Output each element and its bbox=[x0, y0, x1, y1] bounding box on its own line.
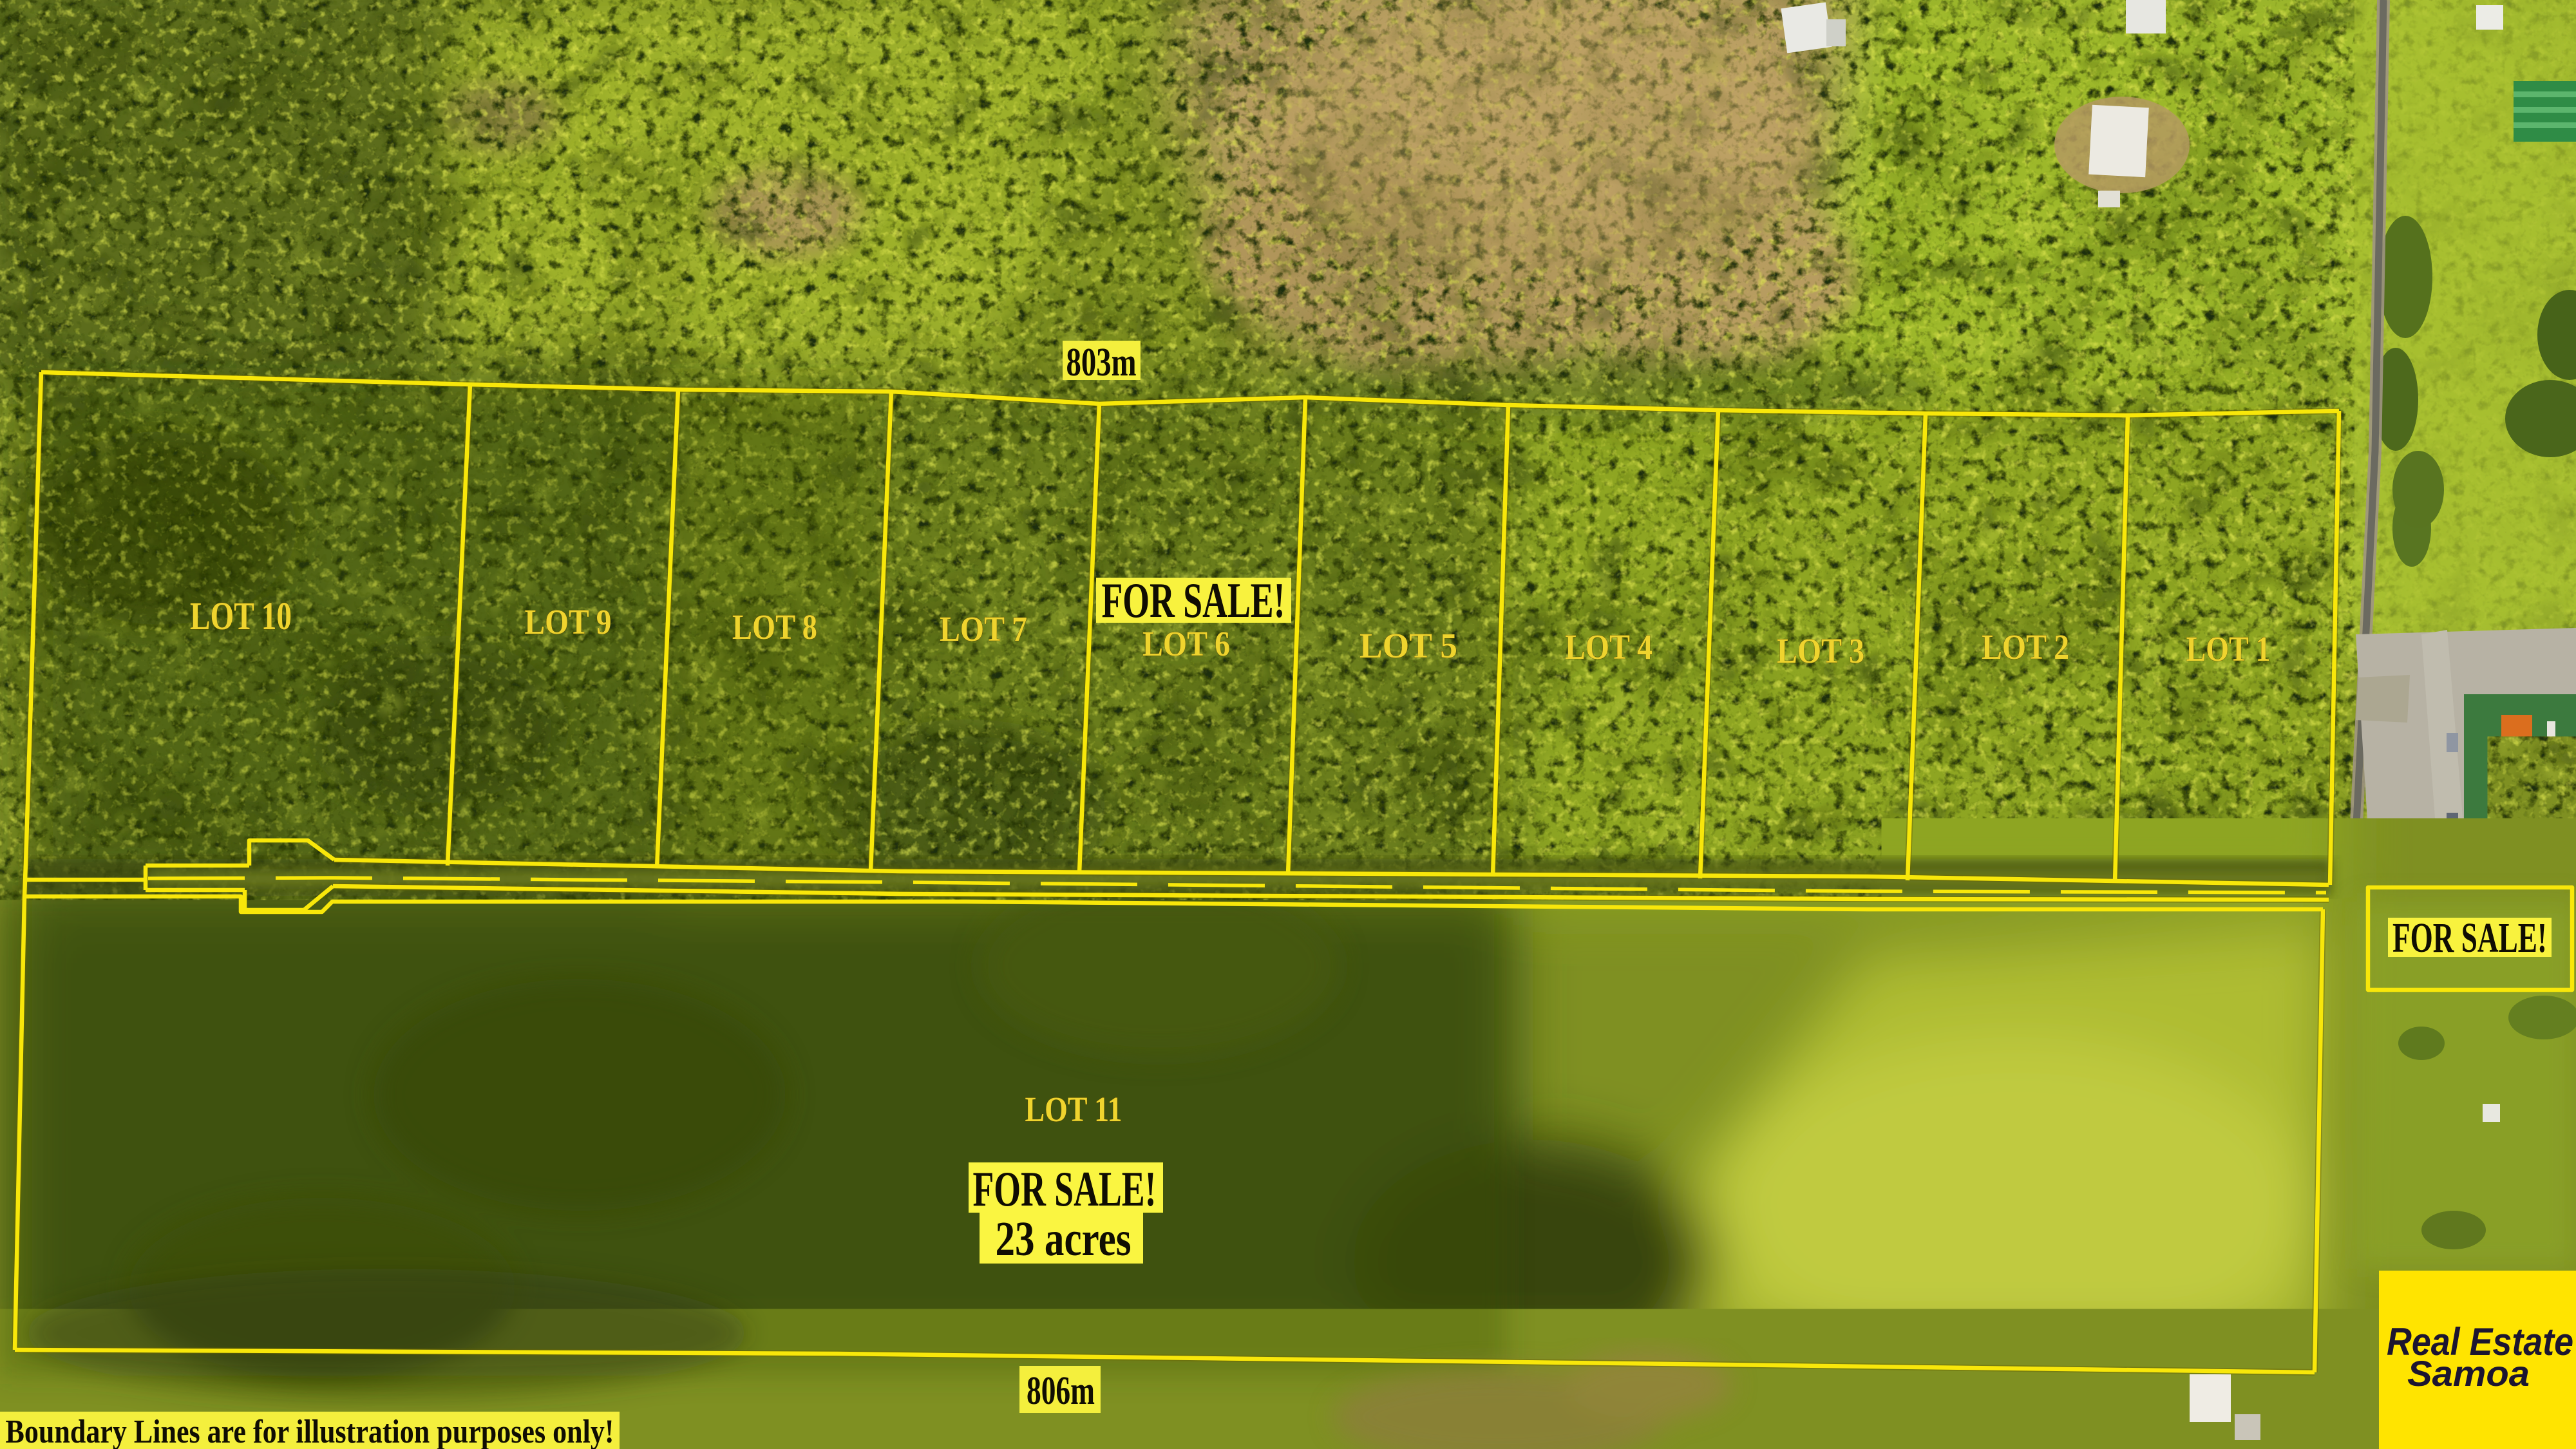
svg-text:LOT 6: LOT 6 bbox=[1142, 624, 1230, 663]
svg-text:23 acres: 23 acres bbox=[996, 1212, 1132, 1266]
svg-text:LOT 8: LOT 8 bbox=[732, 607, 817, 647]
svg-text:LOT 9: LOT 9 bbox=[525, 602, 612, 641]
svg-text:LOT 5: LOT 5 bbox=[1359, 626, 1457, 665]
svg-text:Boundary Lines are for illustr: Boundary Lines are for illustration purp… bbox=[6, 1414, 614, 1449]
svg-text:LOT 3: LOT 3 bbox=[1777, 631, 1864, 670]
svg-text:FOR SALE!: FOR SALE! bbox=[2392, 914, 2547, 961]
svg-text:LOT 10: LOT 10 bbox=[190, 595, 292, 638]
svg-text:LOT 7: LOT 7 bbox=[940, 609, 1027, 649]
svg-text:FOR SALE!: FOR SALE! bbox=[1102, 573, 1285, 628]
svg-text:LOT 2: LOT 2 bbox=[1982, 627, 2069, 667]
svg-text:LOT 1: LOT 1 bbox=[2186, 629, 2271, 668]
svg-text:LOT 11: LOT 11 bbox=[1025, 1090, 1122, 1129]
svg-text:LOT 4: LOT 4 bbox=[1565, 627, 1653, 667]
svg-text:FOR SALE!: FOR SALE! bbox=[973, 1161, 1157, 1217]
svg-text:803m: 803m bbox=[1066, 341, 1137, 384]
svg-text:Samoa: Samoa bbox=[2407, 1353, 2530, 1394]
svg-text:806m: 806m bbox=[1027, 1369, 1095, 1413]
